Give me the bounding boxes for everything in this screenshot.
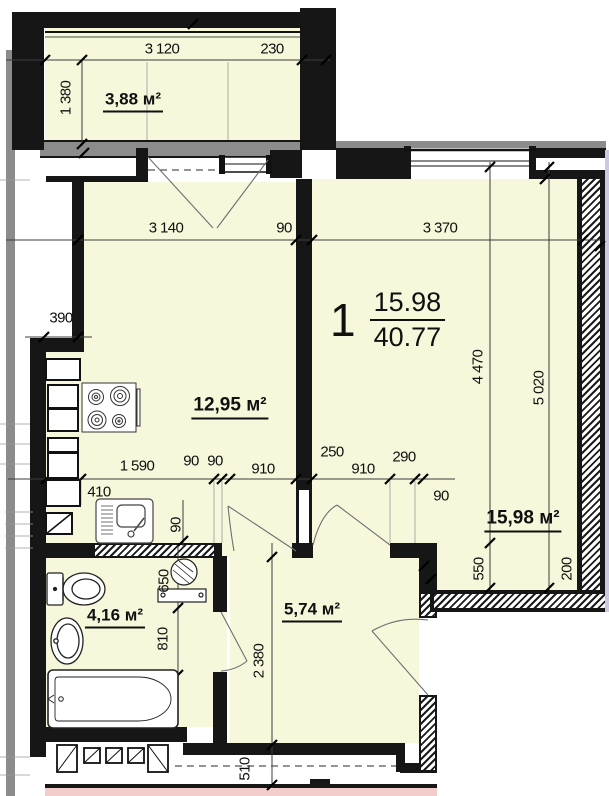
dim-counter: 1 590 — [120, 459, 155, 474]
dim-jamb-90-mid: 90 — [169, 517, 184, 533]
dim-wall-250: 250 — [320, 445, 343, 460]
wall-hatched — [419, 695, 437, 772]
dim-wall-gap: 90 — [276, 221, 292, 236]
doorway-kitchen — [222, 543, 292, 558]
wall-hatched — [95, 545, 214, 556]
kitchen-floor-upper — [84, 182, 296, 352]
wall — [270, 150, 302, 178]
dim-counter-410: 410 — [87, 485, 110, 500]
window-jamb — [404, 146, 411, 179]
wall — [30, 727, 187, 742]
wall — [213, 556, 227, 612]
dim-room-depth: 4 470 — [471, 350, 486, 385]
dim-bath-810: 810 — [156, 627, 171, 650]
wall — [430, 590, 434, 612]
dim-jamb-a: 90 — [183, 454, 199, 469]
area-label-living: 15,98 м² — [484, 508, 561, 533]
wall — [183, 743, 400, 755]
facade-strip — [336, 141, 606, 148]
dim-jamb-90-right: 90 — [433, 489, 449, 504]
dim-hall-bottom: 510 — [238, 757, 253, 780]
wall — [12, 12, 305, 28]
wall-column — [300, 8, 336, 150]
doorway-room — [313, 543, 390, 558]
unit-areas: 15.98 40.77 — [370, 288, 446, 352]
dim-wall-200: 200 — [560, 557, 575, 580]
dim-balcony-depth: 1 380 — [59, 81, 74, 116]
area-label-hallway: 5,74 м² — [282, 600, 342, 623]
wall — [336, 148, 408, 179]
wall — [292, 543, 313, 558]
dim-bath-650: 650 — [157, 569, 172, 592]
dim-room-550: 550 — [472, 557, 487, 580]
wall — [430, 608, 605, 612]
dim-door-kitchen: 910 — [251, 462, 274, 477]
wall — [532, 170, 606, 179]
wall — [213, 672, 227, 743]
dim-room-width: 3 370 — [423, 221, 458, 236]
adjacent-unit-strip — [45, 784, 437, 796]
wall — [12, 12, 44, 150]
wall-partition — [296, 179, 312, 490]
unit-total-area: 40.77 — [370, 321, 446, 351]
dim-jamb-b: 90 — [207, 454, 223, 469]
duct-shafts — [57, 745, 168, 772]
wall-partition-open — [296, 490, 312, 543]
wall — [310, 779, 330, 787]
dim-door-room: 910 — [351, 462, 374, 477]
dim-niche: 390 — [49, 311, 72, 326]
window-jamb — [529, 146, 536, 179]
wall-hatched-right — [582, 179, 600, 590]
wall-hatched-bottom — [430, 594, 605, 608]
wall — [419, 543, 437, 592]
dim-balcony-width: 3 120 — [145, 42, 180, 57]
unit-number: 1 — [330, 297, 356, 343]
wall — [532, 148, 606, 158]
dim-jamb-290: 290 — [392, 450, 415, 465]
bathroom-floor — [46, 556, 215, 727]
floor-plan: 1 15.98 40.77 3,88 м² 12,95 м² 15,98 м² … — [0, 0, 609, 796]
balcony-parapet — [40, 140, 302, 158]
area-label-bathroom: 4,16 м² — [85, 606, 145, 629]
adjacent-unit-right — [605, 150, 609, 612]
wall — [72, 176, 84, 352]
unit-summary: 1 15.98 40.77 — [330, 288, 445, 352]
area-label-kitchen: 12,95 м² — [191, 395, 268, 420]
door-jamb — [136, 148, 148, 180]
wall — [46, 176, 148, 182]
dim-kitchen-width: 3 140 — [149, 221, 184, 236]
site-boundary-strip — [6, 50, 15, 796]
wall — [30, 338, 72, 352]
dim-balcony-end: 230 — [260, 42, 283, 57]
unit-living-area: 15.98 — [370, 288, 446, 321]
doorway-bathroom — [213, 612, 227, 672]
dim-hall-depth: 2 380 — [252, 644, 267, 679]
kitchen-floor — [46, 352, 296, 543]
living-room-floor-lower — [430, 543, 577, 590]
area-label-balcony: 3,88 м² — [103, 90, 163, 113]
dim-room-depth-full: 5 020 — [532, 371, 547, 406]
